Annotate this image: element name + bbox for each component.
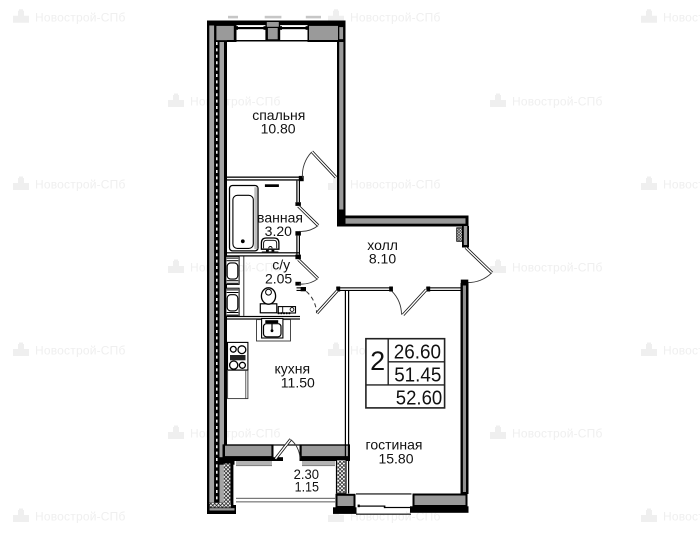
svg-text:2.05: 2.05 [265, 270, 292, 286]
svg-text:51.45: 51.45 [394, 364, 441, 387]
svg-text:26.60: 26.60 [394, 341, 441, 364]
svg-text:52.60: 52.60 [396, 387, 442, 410]
svg-text:1.15: 1.15 [295, 478, 320, 494]
svg-text:8.10: 8.10 [369, 251, 396, 267]
svg-text:11.50: 11.50 [281, 375, 315, 391]
svg-text:3.20: 3.20 [265, 223, 292, 239]
svg-text:2: 2 [370, 346, 385, 376]
svg-text:10.80: 10.80 [261, 121, 296, 137]
svg-text:15.80: 15.80 [378, 450, 413, 466]
